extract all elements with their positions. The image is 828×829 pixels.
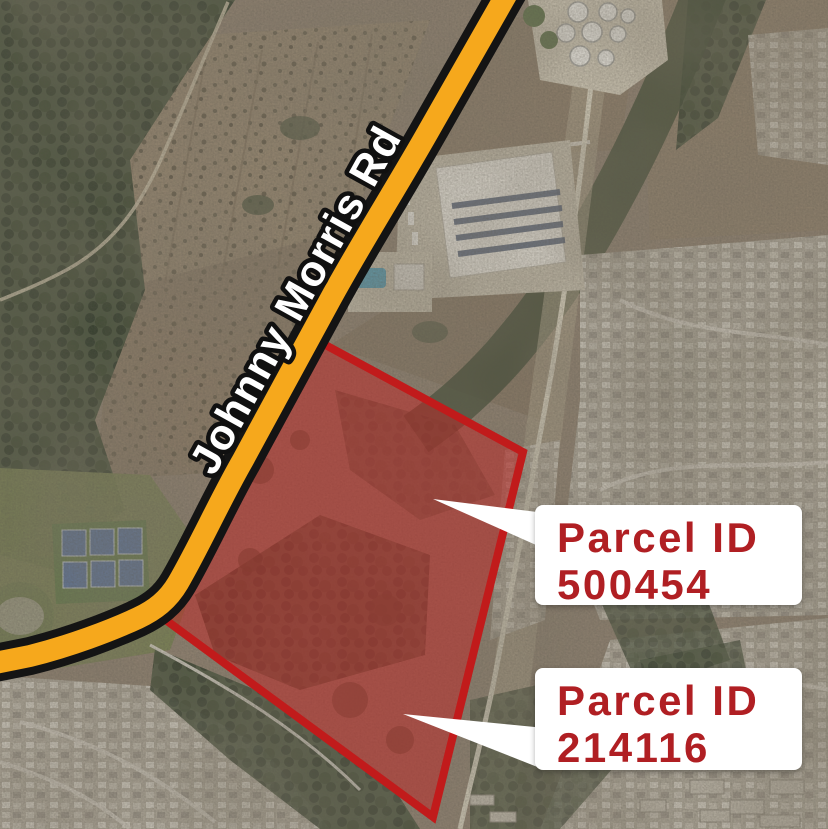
map-screenshot: Johnny Morris Rd Parcel ID 500454 Parcel… xyxy=(0,0,828,829)
parcel-id-value: 500454 xyxy=(557,561,802,608)
parcel-callout-title: Parcel ID xyxy=(557,677,802,724)
parcel-callout-title: Parcel ID xyxy=(557,514,802,561)
parcel-id-value: 214116 xyxy=(557,724,802,771)
parcel-callout-500454: Parcel ID 500454 xyxy=(535,505,802,605)
parcel-callout-214116: Parcel ID 214116 xyxy=(535,668,802,770)
